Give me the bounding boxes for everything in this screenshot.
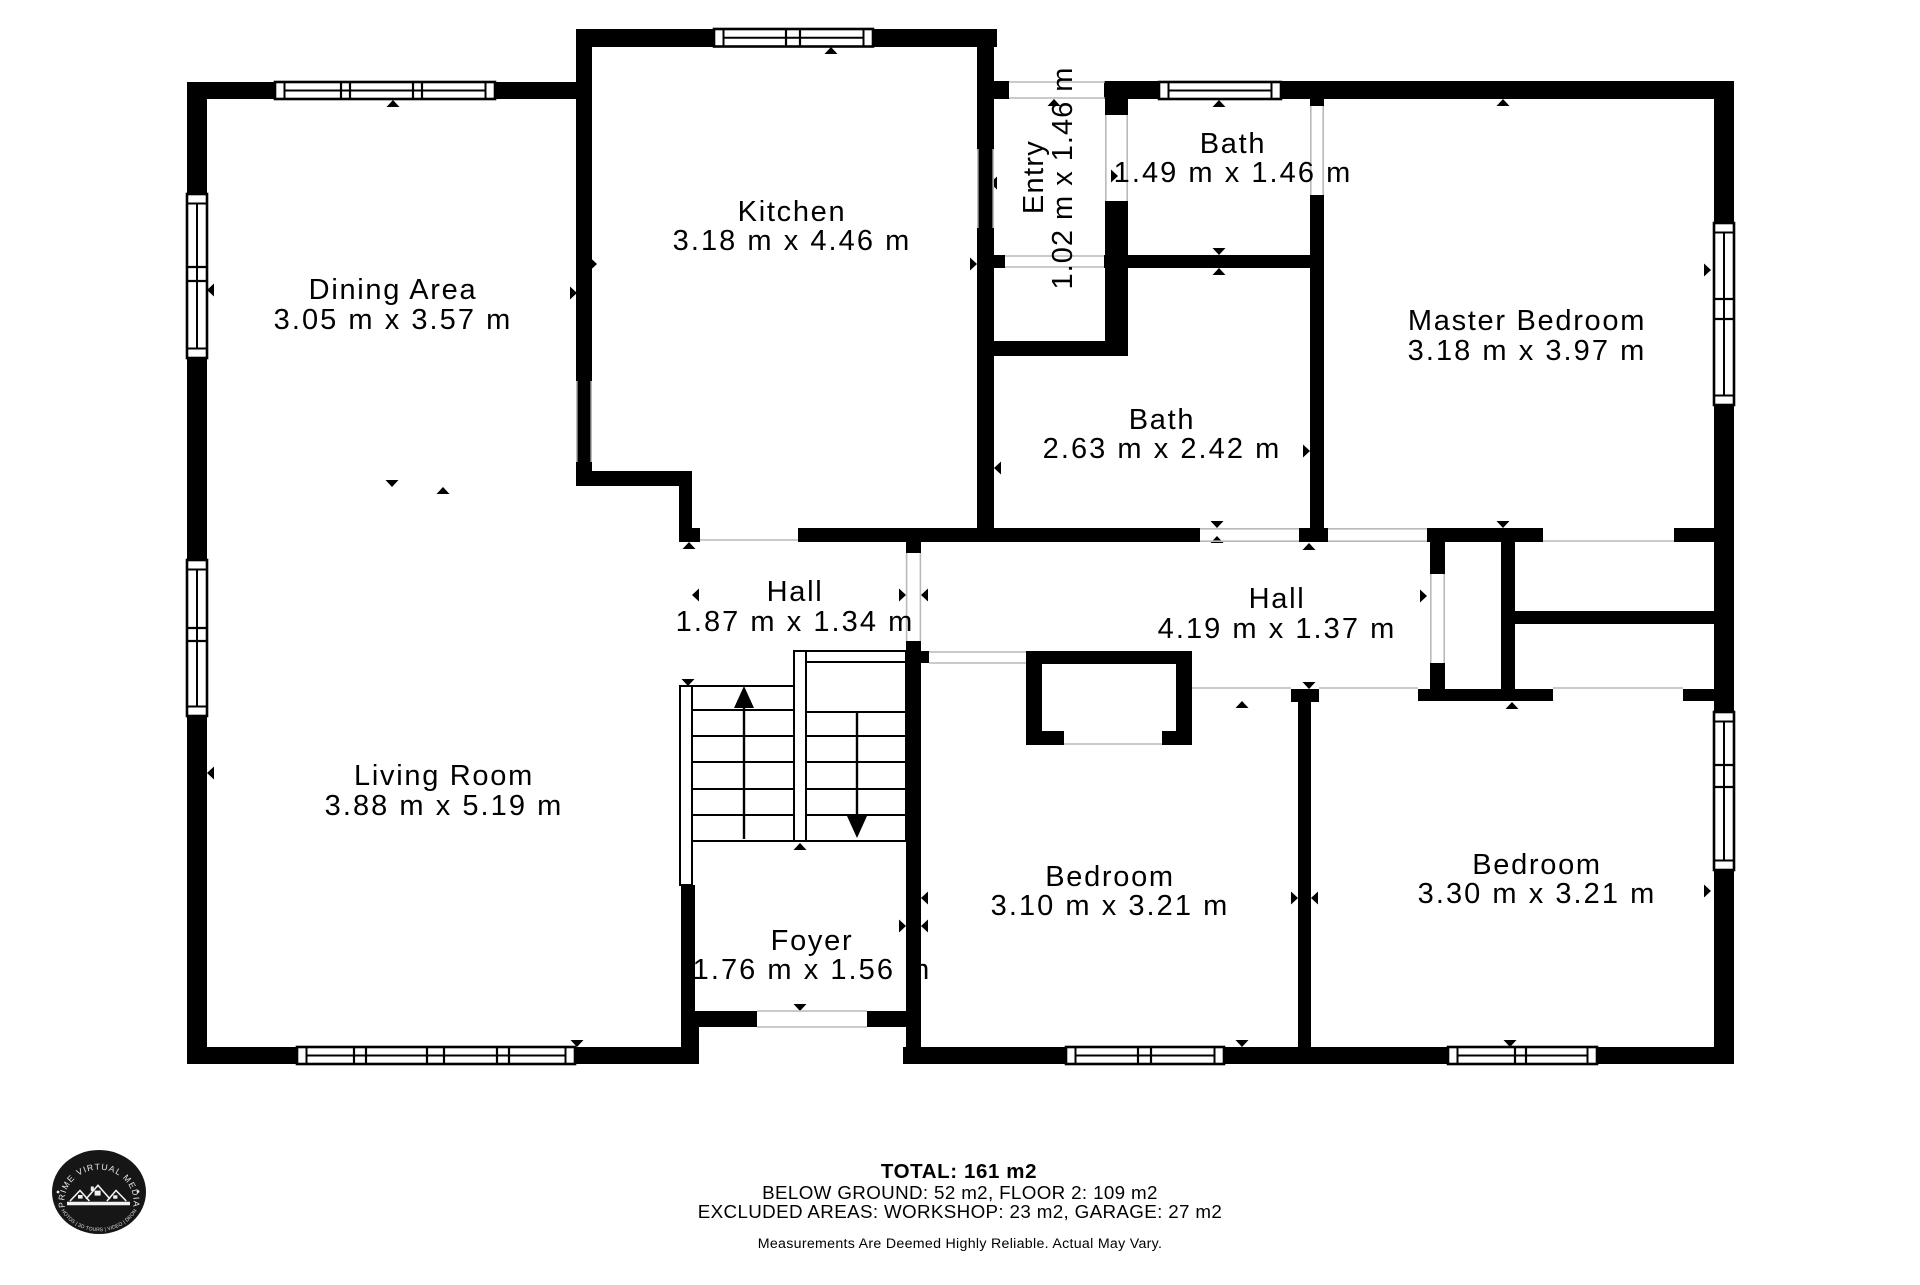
svg-text:EXCLUDED AREAS: WORKSHOP: 23 m: EXCLUDED AREAS: WORKSHOP: 23 m2, GARAGE:… (698, 1201, 1222, 1222)
svg-text:Bath: Bath (1129, 404, 1195, 436)
svg-text:1.49 m x 1.46 m: 1.49 m x 1.46 m (1114, 157, 1353, 189)
svg-text:Measurements Are Deemed Highly: Measurements Are Deemed Highly Reliable.… (758, 1236, 1163, 1252)
svg-text:Entry: Entry (1018, 140, 1050, 214)
svg-text:Kitchen: Kitchen (738, 196, 847, 228)
svg-text:4.19 m x 1.37 m: 4.19 m x 1.37 m (1158, 613, 1397, 645)
svg-text:3.18 m x 3.97 m: 3.18 m x 3.97 m (1408, 335, 1647, 367)
svg-text:3.10 m x 3.21 m: 3.10 m x 3.21 m (991, 890, 1230, 922)
svg-text:BELOW GROUND: 52 m2, FLOOR 2:: BELOW GROUND: 52 m2, FLOOR 2: 109 m2 (762, 1182, 1158, 1203)
svg-text:2.63 m x 2.42 m: 2.63 m x 2.42 m (1043, 433, 1282, 465)
svg-text:3.05 m x 3.57 m: 3.05 m x 3.57 m (274, 304, 513, 336)
svg-text:Hall: Hall (767, 576, 824, 608)
svg-text:Bedroom: Bedroom (1045, 861, 1175, 893)
svg-text:Bath: Bath (1200, 128, 1266, 160)
svg-text:Master Bedroom: Master Bedroom (1408, 305, 1646, 337)
svg-text:1.87 m x 1.34 m: 1.87 m x 1.34 m (676, 606, 915, 638)
svg-text:1.02 m x 1.46 m: 1.02 m x 1.46 m (1047, 67, 1079, 290)
svg-text:3.30 m x 3.21 m: 3.30 m x 3.21 m (1418, 878, 1657, 910)
svg-text:3.18 m x 4.46 m: 3.18 m x 4.46 m (673, 225, 912, 257)
svg-text:Dining Area: Dining Area (309, 274, 478, 306)
svg-text:1.76 m x 1.56 m: 1.76 m x 1.56 m (693, 954, 932, 986)
svg-text:Bedroom: Bedroom (1472, 849, 1602, 881)
svg-text:Living Room: Living Room (354, 760, 534, 792)
svg-text:3.88 m x 5.19 m: 3.88 m x 5.19 m (325, 790, 564, 822)
svg-text:Foyer: Foyer (771, 925, 854, 957)
svg-text:Hall: Hall (1249, 583, 1306, 615)
svg-text:TOTAL: 161 m2: TOTAL: 161 m2 (881, 1160, 1037, 1183)
